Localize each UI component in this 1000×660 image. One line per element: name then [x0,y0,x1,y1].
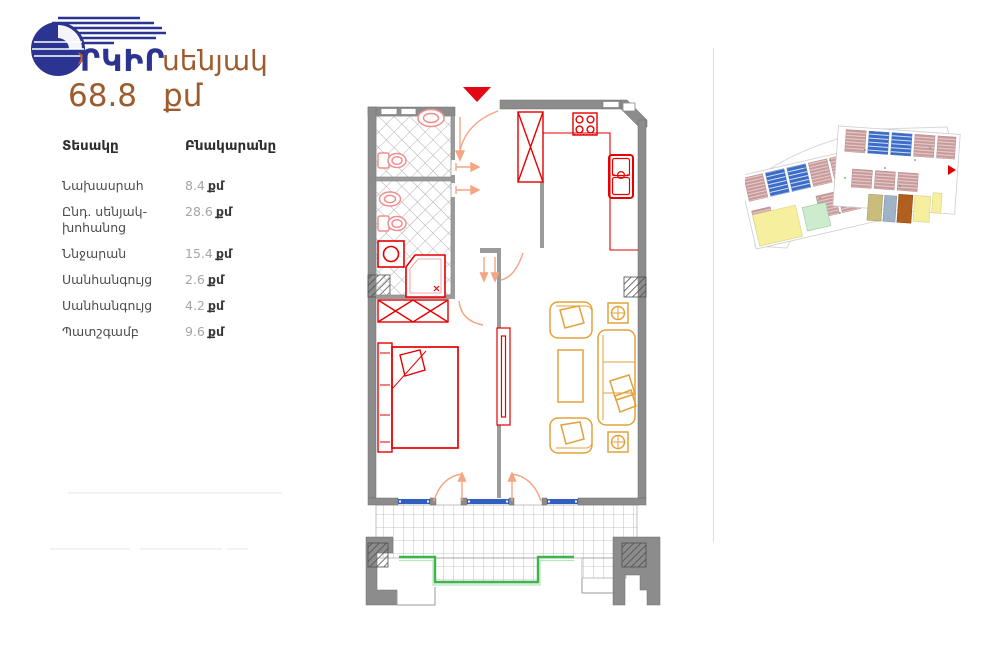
row-label: Սանհանգույց [62,298,185,314]
minimap-tan-unit [867,194,883,221]
bedroom-furniture [378,300,458,452]
kitchen-sink-icon [609,155,633,198]
spec-table-header: Տեսակը Բնակարանը [62,138,308,154]
balcony-windows [398,499,578,504]
unit-area: 68.8 քմ [68,78,202,114]
table-row: Սանհանգույց 4.2քմ [62,298,308,314]
kitchen [518,112,638,250]
table-row: Պատշգամբ 9.6քմ [62,324,308,340]
current-unit-highlight[interactable] [897,194,913,223]
room-spec-table: Տեսակը Բնակարանը Նախասրահ 8.4քմ Ընդ. սեն… [62,138,308,350]
row-label: Պատշգամբ [62,324,185,340]
row-unit: քմ [208,324,224,339]
row-unit: քմ [216,246,232,261]
yerkir-logo[interactable]: ՐԿԻՐ [28,12,168,80]
entrance-marker-icon [463,87,491,102]
placeholder-line [50,548,130,550]
tv-unit-icon [497,328,510,425]
balcony-door [509,473,542,501]
row-value: 4.2 [185,298,205,313]
washing-machine-icon [378,241,404,267]
side-table-icon [608,303,628,323]
stove-icon [573,113,597,135]
minimap-green-unit [802,202,831,231]
bathroom-door [456,186,479,194]
kitchen-counter [543,133,638,250]
placeholder-line [68,492,282,494]
bathroom-door [456,163,479,171]
minimap-yellow-unit [932,193,942,214]
placeholder-line [227,548,248,550]
shower-icon [406,255,445,297]
row-label: Ընդ. սենյակ-խոհանոց [62,204,185,236]
row-value: 9.6 [185,324,205,339]
table-row: Նախասրահ 8.4քմ [62,178,308,194]
unit-type-label: սենյակ [162,44,268,77]
cabinet-icon [518,112,543,182]
row-unit: քմ [208,178,224,193]
table-row: Ննջարան 15.4քմ [62,246,308,262]
unit-area-value: 68.8 [68,78,137,114]
sofa-icon [598,330,636,425]
unit-area-unit: քմ [163,78,202,114]
column-header-type: Տեսակը [62,138,185,154]
balcony-door [434,473,466,501]
row-value: 8.4 [185,178,205,193]
row-label: Սանհանգույց [62,272,185,288]
armchair-icon [550,418,592,453]
row-label: Ննջարան [62,246,185,262]
row-unit: քմ [208,298,224,313]
row-label: Նախասրահ [62,178,185,194]
bedroom-door [459,301,483,325]
logo-text: ՐԿԻՐ [80,44,165,79]
wardrobe-icon [378,300,448,322]
vertical-divider [713,48,714,542]
placeholder-line [140,548,222,550]
building-overview-map[interactable] [745,118,970,258]
toilet-icon [378,216,406,231]
coffee-table-icon [558,350,583,402]
side-table-icon [608,432,628,452]
column-header-apartment: Բնակարանը [185,138,276,154]
toilet-icon [378,153,406,168]
row-value: 28.6 [185,204,213,219]
armchair-icon [550,302,592,338]
row-value: 2.6 [185,272,205,287]
table-row: Սանհանգույց 2.6քմ [62,272,308,288]
floor-plan [363,85,663,615]
logo-globe-icon [31,22,87,76]
row-value: 15.4 [185,246,213,261]
apartment-detail-page: ՐԿԻՐ սենյակ 68.8 քմ Տեսակը Բնակարանը Նախ… [0,0,1000,660]
living-room-door [501,253,523,280]
row-unit: քմ [208,272,224,287]
living-room-furniture [550,302,636,453]
bed-icon [378,343,458,452]
minimap-yellow-unit [913,195,931,222]
table-row: Ընդ. սենյակ-խոհանոց 28.6քմ [62,204,308,236]
row-unit: քմ [216,204,232,219]
balcony-tiles [376,505,637,583]
minimap-bluegray-unit [883,195,897,222]
